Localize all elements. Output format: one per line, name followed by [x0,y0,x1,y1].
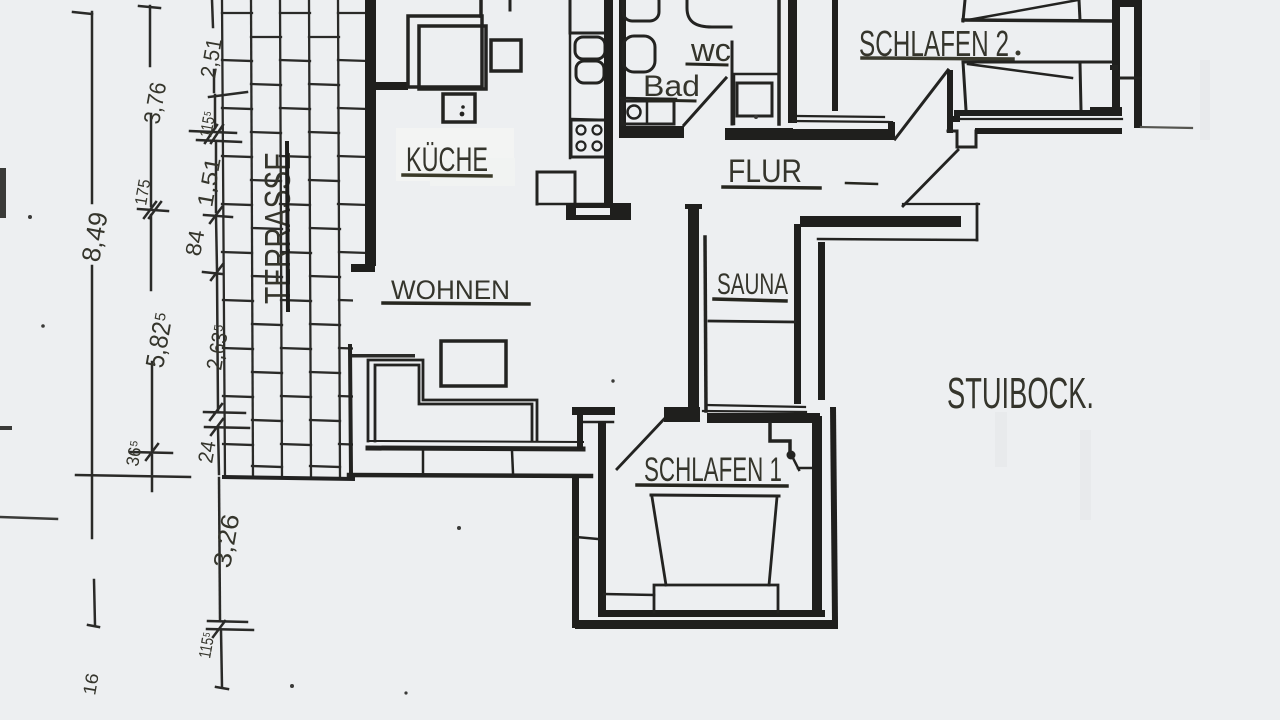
svg-text:KÜCHE: KÜCHE [406,141,488,179]
svg-text:TERRASSE: TERRASSE [257,152,298,304]
svg-text:16: 16 [79,672,103,697]
svg-text:SAUNA: SAUNA [717,268,788,301]
svg-text:WOHNEN: WOHNEN [391,275,510,305]
svg-text:STUIBOCK.: STUIBOCK. [947,369,1094,418]
svg-text:Bad: Bad [643,70,700,103]
svg-text:84: 84 [180,228,209,258]
svg-text:wc: wc [690,32,731,68]
svg-text:SCHLAFEN 1: SCHLAFEN 1 [644,451,782,489]
svg-text:FLUR: FLUR [728,153,802,189]
svg-text:24: 24 [194,439,221,465]
